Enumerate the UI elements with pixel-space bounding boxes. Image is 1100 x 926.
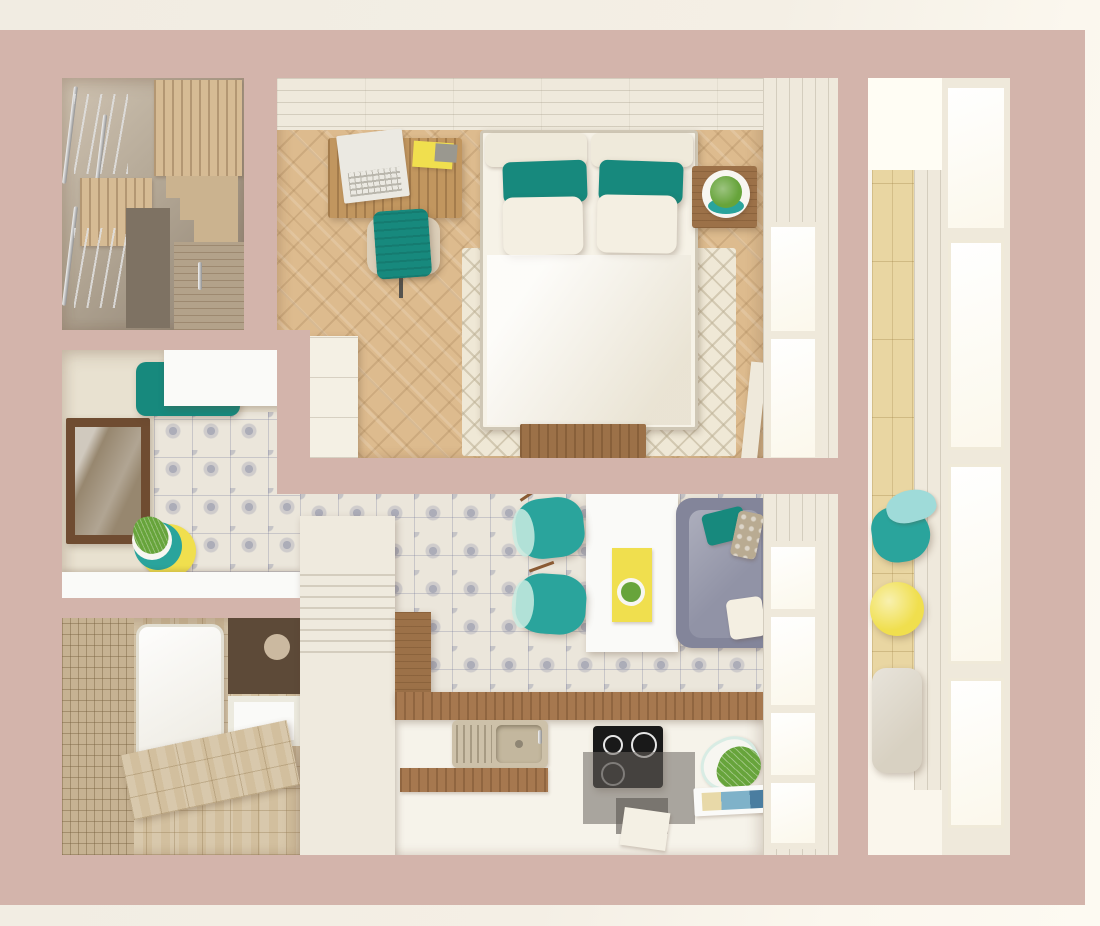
wood-cabinet bbox=[395, 612, 431, 704]
window-pane bbox=[771, 339, 815, 457]
plate-stack bbox=[132, 520, 198, 580]
living-window bbox=[765, 541, 823, 849]
bedroom-top-wall bbox=[277, 78, 763, 130]
window-pane bbox=[948, 240, 1004, 450]
bed-end-bench bbox=[520, 424, 646, 458]
room-bedroom bbox=[277, 78, 763, 458]
window-pane bbox=[948, 678, 1004, 828]
window-pane bbox=[771, 617, 815, 705]
white-pillow bbox=[502, 196, 583, 255]
window-pane bbox=[771, 713, 815, 775]
wall-bottom bbox=[0, 855, 1085, 905]
window-pane bbox=[771, 783, 815, 843]
room-kitchen-living bbox=[300, 494, 763, 855]
door-handle-icon bbox=[198, 262, 202, 290]
sink-drain-icon bbox=[515, 740, 523, 748]
bedroom-window bbox=[766, 222, 822, 462]
wall-top bbox=[0, 30, 1085, 78]
wall-closet-bedroom bbox=[244, 78, 277, 350]
wall-left bbox=[0, 78, 62, 855]
shelf-step bbox=[194, 220, 238, 242]
sink-bowl bbox=[496, 725, 542, 763]
potted-plant-icon bbox=[710, 176, 742, 208]
teal-throw bbox=[373, 208, 433, 280]
bar-stool bbox=[514, 572, 588, 637]
white-wardrobe bbox=[310, 336, 358, 458]
magazine-photo bbox=[702, 790, 767, 811]
wall-hallway-top bbox=[62, 330, 300, 350]
shelf-step bbox=[166, 176, 238, 198]
hallway-console bbox=[62, 572, 300, 598]
tall-cabinet-column bbox=[300, 516, 395, 855]
serving-tray bbox=[612, 548, 652, 622]
window-pane bbox=[771, 227, 815, 331]
pouf bbox=[872, 668, 922, 773]
room-bathroom bbox=[62, 618, 300, 855]
mosaic-wall bbox=[62, 618, 134, 855]
window-pane bbox=[948, 88, 1004, 228]
wood-counter-piece bbox=[400, 768, 548, 792]
bath-wall-cabinet bbox=[228, 618, 300, 694]
wall-bedroom-living-divider bbox=[277, 458, 838, 494]
apartment-floorplan-render bbox=[0, 0, 1100, 926]
white-wedge bbox=[620, 807, 671, 851]
closet-floor bbox=[126, 208, 170, 328]
living-right-wall bbox=[763, 494, 838, 855]
laptop bbox=[336, 128, 410, 204]
room-balcony bbox=[868, 78, 1010, 855]
wall-right bbox=[1010, 78, 1085, 855]
wardrobe-door bbox=[174, 242, 244, 330]
kitchen-sink bbox=[452, 720, 548, 768]
room-walk-in-closet bbox=[62, 78, 244, 330]
sofa-white-pillow bbox=[725, 596, 766, 641]
mirror-glass bbox=[75, 427, 141, 535]
sink-drainboard bbox=[456, 725, 492, 763]
hanger-group-icon bbox=[74, 228, 128, 308]
sink-faucet-icon bbox=[538, 730, 542, 744]
tray-plant-icon bbox=[621, 582, 641, 602]
white-pillow bbox=[597, 194, 678, 253]
wall-balcony-divider bbox=[838, 78, 868, 855]
bedroom-right-wall bbox=[763, 78, 838, 458]
top-shelf-panel bbox=[154, 80, 242, 176]
window-pane bbox=[771, 547, 815, 609]
floating-cabinet bbox=[164, 350, 290, 406]
cabinet-light-icon bbox=[264, 634, 290, 660]
window-pane bbox=[948, 464, 1004, 664]
wall-hallway-bathroom-divider bbox=[62, 598, 300, 618]
gray-notebook bbox=[434, 143, 457, 162]
room-hallway bbox=[62, 350, 300, 598]
balcony-window-column bbox=[942, 78, 1010, 855]
side-table bbox=[870, 582, 924, 636]
balcony-wood-wall bbox=[872, 170, 914, 730]
bed bbox=[480, 130, 698, 430]
wood-worktop bbox=[395, 692, 763, 720]
cabinet-slats bbox=[300, 574, 395, 660]
shelf-step bbox=[180, 198, 238, 220]
laptop-keyboard bbox=[348, 167, 403, 197]
duvet bbox=[487, 255, 691, 425]
